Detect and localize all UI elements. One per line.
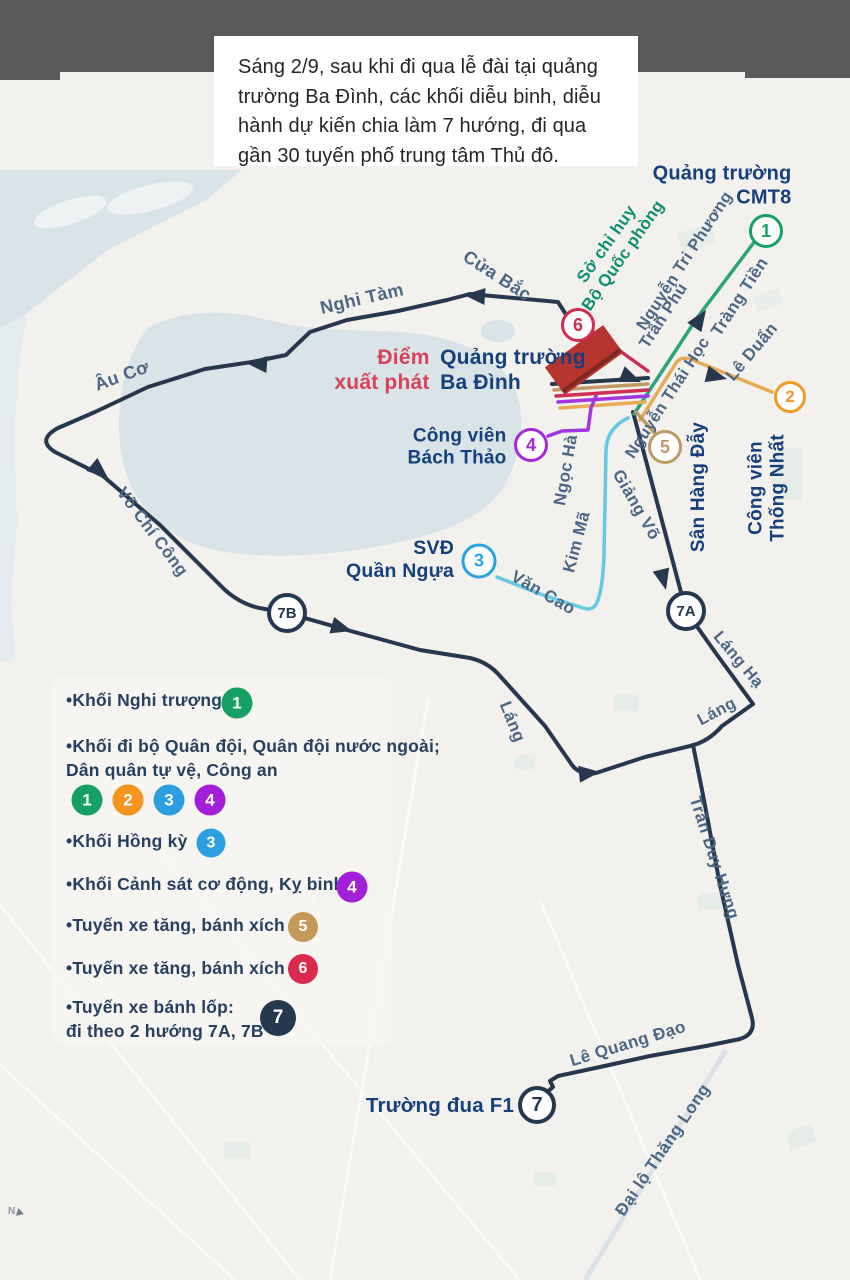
compass-north: N [8,1206,22,1217]
map-badge-3: 3 [462,544,497,579]
west-lake [119,313,522,556]
arrow-giang-vo [653,568,675,592]
legend-item-banh-lop-line1: •Tuyến xe bánh lốp: [66,997,234,1018]
legend-badge-1: 1 [222,688,253,719]
legend-badge-canh-sat: 4 [337,872,368,903]
map-badge-1: 1 [749,214,783,248]
legend-item-xe-tang-5: •Tuyến xe tăng, bánh xích [66,915,285,936]
legend-item-hong-ky: •Khối Hồng kỳ [66,831,188,852]
red-river [0,170,242,328]
legend-badge-xe-tang-5: 5 [288,912,318,942]
left-edge-water [0,314,26,662]
map-canvas [0,0,850,1280]
arrow-nghi-tam [463,287,485,305]
legend-backdrop [52,678,392,1044]
legend-badge-row-1: 1 [72,785,103,816]
legend-badge-xe-tang-6: 6 [288,954,318,984]
map-badge-2: 2 [774,381,806,413]
truc-bach-lake [481,320,515,342]
legend-badge-row-2: 2 [113,785,144,816]
map-badge-7a: 7A [666,591,706,631]
route-le-quang-dao [540,1046,706,1098]
legend-item-di-bo-line1: •Khối đi bộ Quân đội, Quân đội nước ngoà… [66,736,440,757]
map-badge-7: 7 [518,1086,556,1124]
arrow-lang-east [578,764,601,783]
thang-long-road [585,1050,726,1280]
arrow-lang-west [329,617,354,639]
legend-badge-row-3: 3 [154,785,185,816]
infographic-parade-routes-map: Sáng 2/9, sau khi đi qua lễ đài tại quản… [0,0,850,1280]
compass-label: N [8,1206,15,1217]
route-2-orange [640,358,772,420]
legend-badge-row-4: 4 [195,785,226,816]
legend-item-nghi-truong: •Khối Nghi trượng [66,690,222,711]
map-badge-7b: 7B [267,593,307,633]
map-badge-4: 4 [514,428,548,462]
legend-item-di-bo-line2: Dân quân tự vệ, Công an [66,760,278,781]
legend-item-banh-lop-line2: đi theo 2 hướng 7A, 7B [66,1021,264,1042]
map-badge-6: 6 [561,308,595,342]
legend-item-xe-tang-6: •Tuyến xe tăng, bánh xích [66,958,285,979]
legend-badge-banh-lop: 7 [260,1000,296,1036]
bundle-orange [560,402,645,408]
map-badge-5: 5 [648,430,682,464]
legend-badge-hong-ky: 3 [197,829,226,858]
legend-item-canh-sat: •Khối Cảnh sát cơ động, Kỵ binh [66,874,345,895]
